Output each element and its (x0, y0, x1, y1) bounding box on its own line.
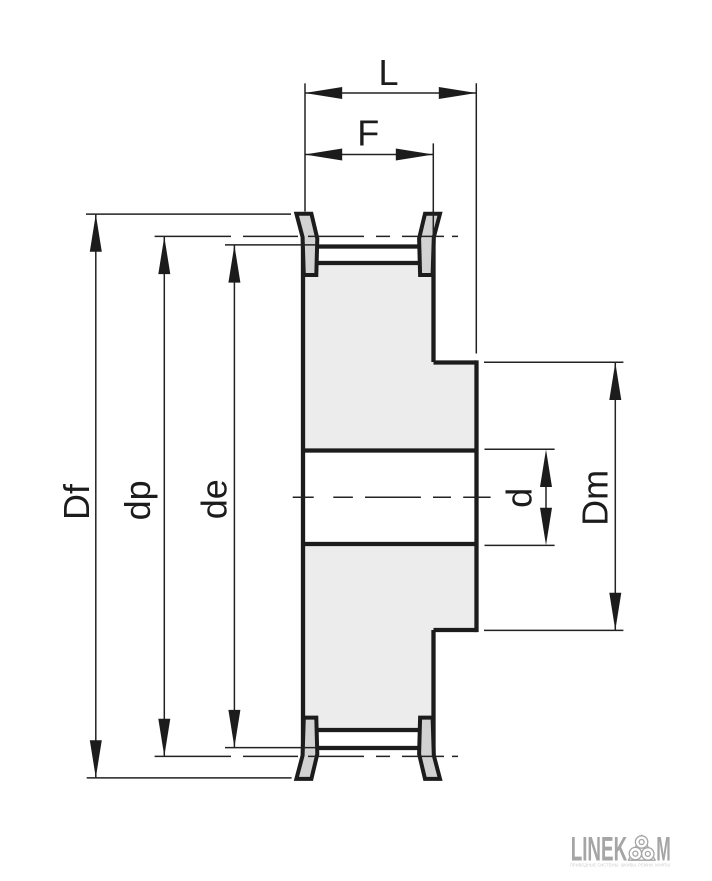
svg-text:ПРИВОДНЫЕ СИСТЕМЫ. ШКИВЫ. РЕМН: ПРИВОДНЫЕ СИСТЕМЫ. ШКИВЫ. РЕМНИ. МУФТЫ (570, 862, 670, 867)
svg-text:F: F (357, 113, 379, 154)
svg-text:L: L (378, 52, 398, 93)
svg-text:de: de (193, 479, 234, 519)
svg-text:Df: Df (56, 483, 97, 520)
svg-text:dp: dp (117, 480, 158, 520)
svg-text:d: d (498, 488, 539, 508)
svg-text:Dm: Dm (575, 470, 616, 526)
